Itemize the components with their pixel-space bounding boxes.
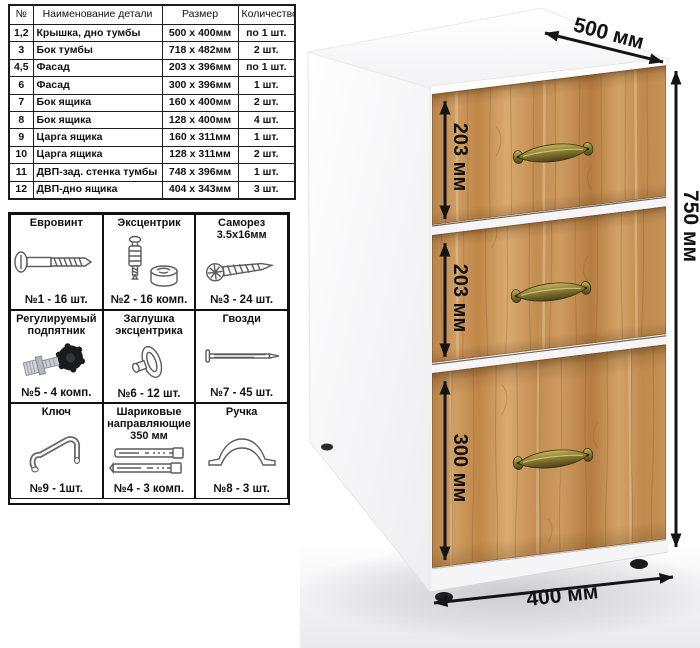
table-row: 1,2 Крышка, дно тумбы 500 x 400мм по 1 ш… <box>9 25 295 42</box>
part-qty: 2 шт. <box>238 146 295 163</box>
part-size: 203 x 396мм <box>162 59 238 76</box>
euro-screw-icon <box>14 230 98 294</box>
hardware-item-zaglushka: Заглушка эксцентрика №6 - 12 шт. <box>103 310 196 403</box>
cabinet-body <box>308 5 668 613</box>
hardware-count: №2 - 16 комп. <box>111 294 188 306</box>
table-row: 7 Бок ящика 160 x 400мм 2 шт. <box>9 94 295 111</box>
table-row: 11 ДВП-зад. стенка тумбы 748 x 396мм 1 ш… <box>9 164 295 181</box>
part-name: Бок ящика <box>33 111 162 128</box>
hardware-count: №7 - 45 шт. <box>210 387 273 399</box>
part-size: 748 x 396мм <box>162 164 238 181</box>
hardware-title: Шариковые направляющие 350 мм <box>107 407 191 443</box>
cabinet-foot <box>630 559 648 569</box>
hardware-count: №3 - 24 шт. <box>210 294 273 306</box>
hardware-count: №8 - 3 шт. <box>213 483 269 495</box>
cabinet-illustration: 500 мм 750 мм 400 мм 203 мм 203 мм 300 м… <box>300 0 700 648</box>
part-number: 8 <box>9 111 33 128</box>
part-number: 9 <box>9 129 33 146</box>
hardware-item-gvozdi: Гвозди №7 - 45 шт. <box>195 310 288 403</box>
part-size: 404 x 343мм <box>162 181 238 199</box>
part-size: 718 x 482мм <box>162 42 238 59</box>
part-qty: 4 шт. <box>238 111 295 128</box>
header-qty: Количество <box>238 5 295 25</box>
header-size: Размер <box>162 5 238 25</box>
part-name: Бок тумбы <box>33 42 162 59</box>
table-row: 3 Бок тумбы 718 x 482мм 2 шт. <box>9 42 295 59</box>
parts-table: № Наименование детали Размер Количество … <box>8 4 296 200</box>
part-name: Фасад <box>33 77 162 94</box>
part-number: 1,2 <box>9 25 33 42</box>
hardware-title: Эксцентрик <box>117 218 180 230</box>
cabinet-foot <box>321 444 333 451</box>
table-row: 12 ДВП-дно ящика 404 x 343мм 3 шт. <box>9 181 295 199</box>
nail-icon <box>202 326 282 387</box>
part-name: Царга ящика <box>33 146 162 163</box>
part-qty: 2 шт. <box>238 94 295 111</box>
part-size: 500 x 400мм <box>162 25 238 42</box>
adjustable-foot-icon <box>20 338 92 387</box>
part-qty: 1 шт. <box>238 164 295 181</box>
table-row: 6 Фасад 300 x 396мм 1 шт. <box>9 77 295 94</box>
drawer2-dimension-label: 203 мм <box>449 264 471 333</box>
hardware-count: №6 - 12 шт. <box>118 388 181 400</box>
drawer1-dimension-label: 203 мм <box>449 123 471 192</box>
hardware-item-eurovint: Евровинт №1 - 16 шт. <box>10 214 103 310</box>
table-row: 9 Царга ящика 160 x 311мм 1 шт. <box>9 129 295 146</box>
part-size: 128 x 311мм <box>162 146 238 163</box>
part-name: Крышка, дно тумбы <box>33 25 162 42</box>
hardware-item-excentrik: Эксцентрик №2 - 16 комп. <box>103 214 196 310</box>
hardware-item-napravlyayushchie: Шариковые направляющие 350 мм №4 - 3 ком… <box>103 403 196 499</box>
hardware-title: Заглушка эксцентрика <box>115 314 183 338</box>
part-number: 4,5 <box>9 59 33 76</box>
hardware-count: №4 - 3 комп. <box>114 483 184 495</box>
part-qty: 1 шт. <box>238 129 295 146</box>
part-number: 11 <box>9 164 33 181</box>
hardware-grid: Евровинт №1 - 16 шт. Эксцентрик <box>8 212 290 505</box>
cabinet-side-panel <box>308 52 430 592</box>
drawer3-dimension-label: 300 мм <box>449 434 471 503</box>
hardware-count: №9 - 1шт. <box>30 483 83 495</box>
part-qty: по 1 шт. <box>238 25 295 42</box>
hardware-title: Саморез 3.5х16мм <box>217 218 267 242</box>
cam-lock-icon <box>113 230 185 294</box>
hardware-item-ruchka: Ручка №8 - 3 шт. <box>195 403 288 499</box>
header-name: Наименование детали <box>33 5 162 25</box>
header-num: № <box>9 5 33 25</box>
hardware-item-samorez: Саморез 3.5х16мм №3 - 24 шт. <box>195 214 288 310</box>
hardware-count: №5 - 4 комп. <box>21 387 91 399</box>
part-size: 160 x 400мм <box>162 94 238 111</box>
part-qty: 1 шт. <box>238 77 295 94</box>
hardware-title: Регулируемый подпятник <box>16 314 96 338</box>
hardware-title: Гвозди <box>222 314 260 326</box>
part-size: 300 x 396мм <box>162 77 238 94</box>
parts-table-header: № Наименование детали Размер Количество <box>9 5 295 25</box>
table-row: 8 Бок ящика 128 x 400мм 4 шт. <box>9 111 295 128</box>
part-number: 3 <box>9 42 33 59</box>
table-row: 10 Царга ящика 128 x 311мм 2 шт. <box>9 146 295 163</box>
ball-slides-icon <box>109 443 189 483</box>
part-size: 128 x 400мм <box>162 111 238 128</box>
height-dimension-label: 750 мм <box>679 190 700 262</box>
hardware-count: №1 - 16 шт. <box>25 294 88 306</box>
part-size: 160 x 311мм <box>162 129 238 146</box>
part-number: 7 <box>9 94 33 111</box>
part-number: 10 <box>9 146 33 163</box>
part-qty: 2 шт. <box>238 42 295 59</box>
cam-cap-icon <box>124 338 174 388</box>
part-number: 6 <box>9 77 33 94</box>
part-name: ДВП-зад. стенка тумбы <box>33 164 162 181</box>
part-qty: 3 шт. <box>238 181 295 199</box>
hardware-item-podpyatnik: Регулируемый подпятник <box>10 310 103 403</box>
part-name: Бок ящика <box>33 94 162 111</box>
hardware-title: Евровинт <box>30 218 83 230</box>
handle-icon <box>205 419 279 483</box>
part-name: Фасад <box>33 59 162 76</box>
hardware-item-klyuch: Ключ №9 - 1шт. <box>10 403 103 499</box>
hardware-title: Ручка <box>226 407 257 419</box>
assembly-sheet: № Наименование детали Размер Количество … <box>0 0 700 648</box>
hex-key-icon <box>23 419 89 483</box>
part-number: 12 <box>9 181 33 199</box>
table-row: 4,5 Фасад 203 x 396мм по 1 шт. <box>9 59 295 76</box>
hardware-title: Ключ <box>42 407 71 419</box>
part-name: Царга ящика <box>33 129 162 146</box>
part-name: ДВП-дно ящика <box>33 181 162 199</box>
self-tapping-screw-icon <box>204 242 280 294</box>
part-qty: по 1 шт. <box>238 59 295 76</box>
